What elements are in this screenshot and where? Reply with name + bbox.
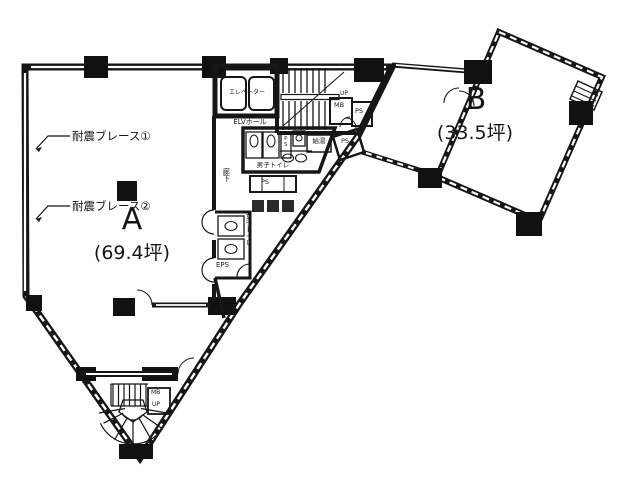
corridor-label: 廊下 <box>222 168 229 182</box>
door-arc <box>137 290 152 305</box>
urinal-icon <box>267 200 279 212</box>
door-arc <box>202 210 214 234</box>
section-b-name: B <box>456 84 496 116</box>
seismic-brace-1-label: 耐震ブレース① <box>72 130 151 142</box>
urinal-icon <box>282 200 294 212</box>
floor-plan-drawing <box>0 0 640 480</box>
elevator-label: エレベーター <box>218 90 276 96</box>
toilet-stall <box>246 132 262 158</box>
corridor-wall <box>202 116 214 300</box>
toilet-stall <box>218 239 244 259</box>
door-arc <box>202 258 214 282</box>
sink-icon <box>296 135 302 141</box>
urinal-icon <box>252 200 264 212</box>
leader-arrowhead <box>36 147 42 222</box>
toilet-icon <box>250 135 258 147</box>
toilet-icon <box>225 222 237 231</box>
mb-entry-label: MB <box>151 390 160 396</box>
ps-b-label: PS <box>341 138 349 145</box>
stair-landing <box>119 400 147 422</box>
floor-plan: 耐震ブレース① 耐震ブレース② A (69.4坪) B (33.5坪) エレベー… <box>0 0 640 480</box>
toilet-icon <box>267 135 275 147</box>
ps-toilet-label: PS <box>261 179 269 186</box>
mens-toilet-label: 男子トイレ <box>246 162 300 169</box>
toilet-stall <box>218 216 244 236</box>
kitchenette-label: 給湯 <box>307 138 331 145</box>
ps-stair-label: PS <box>355 108 363 115</box>
mb-stair-label: MB <box>334 102 344 109</box>
door-arc <box>237 264 250 277</box>
service-shafts <box>250 176 296 212</box>
eps-label: EPS <box>216 262 229 269</box>
toilet-icon <box>225 245 237 254</box>
washbasin-icon <box>296 154 307 162</box>
section-a-name: A <box>110 204 154 236</box>
section-b-area: (33.5坪) <box>410 124 540 144</box>
womens-toilet-label: 女子トイレ <box>244 213 251 246</box>
section-a-area: (69.4坪) <box>70 244 194 264</box>
up-main-label: UP <box>340 91 348 97</box>
toilet-stall <box>263 132 279 158</box>
up-entry-label: UP <box>152 402 160 408</box>
elevator-hall-label: ELVホール <box>224 119 276 126</box>
ps-fixture-label: PS <box>282 136 288 148</box>
brace-leader-lines <box>36 136 70 222</box>
vestibule-walls <box>80 290 210 374</box>
